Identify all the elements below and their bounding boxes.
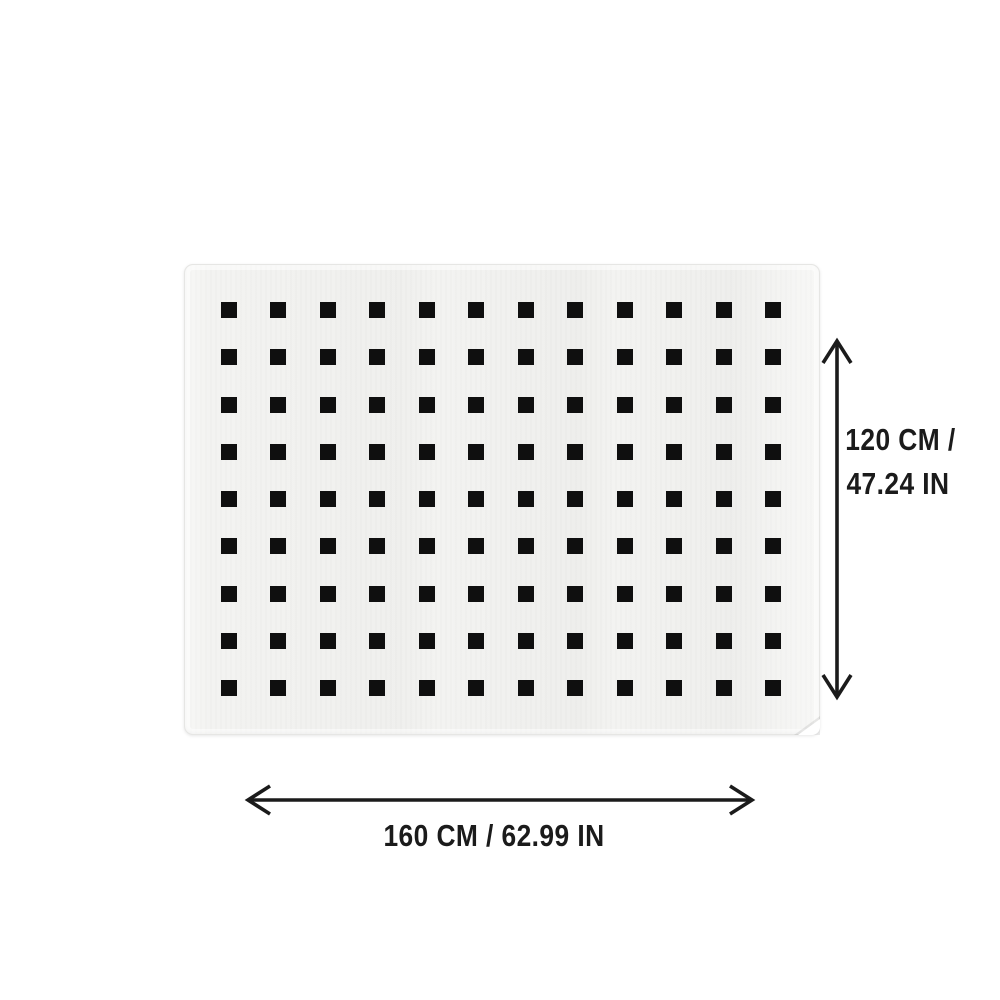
pattern-square: [617, 349, 633, 365]
pattern-square: [419, 680, 435, 696]
pattern-square: [567, 538, 583, 554]
pattern-square: [666, 491, 682, 507]
pattern-square: [221, 538, 237, 554]
pattern-square: [468, 444, 484, 460]
pattern-square: [419, 349, 435, 365]
pattern-square: [320, 586, 336, 602]
pattern-square: [270, 586, 286, 602]
pattern-square: [270, 633, 286, 649]
pattern-square: [666, 633, 682, 649]
pattern-square: [468, 538, 484, 554]
pattern-square: [716, 349, 732, 365]
pattern-square: [617, 538, 633, 554]
rug: [184, 264, 820, 735]
pattern-square: [765, 680, 781, 696]
pattern-square: [666, 444, 682, 460]
pattern-square: [518, 397, 534, 413]
pattern-square: [765, 302, 781, 318]
pattern-square: [765, 349, 781, 365]
pattern-square: [666, 586, 682, 602]
pattern-square: [320, 633, 336, 649]
pattern-square: [617, 444, 633, 460]
height-label-line-2: 47.24 IN: [845, 462, 950, 506]
pattern-square: [221, 680, 237, 696]
pattern-square: [468, 491, 484, 507]
pattern-square: [320, 444, 336, 460]
pattern-square: [270, 491, 286, 507]
pattern-square: [666, 349, 682, 365]
pattern-square: [369, 397, 385, 413]
pattern-square: [320, 349, 336, 365]
pattern-square: [567, 680, 583, 696]
pattern-square: [567, 349, 583, 365]
pattern-square: [617, 491, 633, 507]
pattern-square: [419, 491, 435, 507]
pattern-square: [617, 586, 633, 602]
pattern-square: [468, 349, 484, 365]
pattern-square: [468, 397, 484, 413]
pattern-square: [320, 538, 336, 554]
pattern-square: [666, 680, 682, 696]
pattern-square: [369, 302, 385, 318]
pattern-square: [716, 633, 732, 649]
pattern-square: [716, 397, 732, 413]
pattern-square: [567, 633, 583, 649]
pattern-square: [518, 680, 534, 696]
pattern-square: [617, 397, 633, 413]
pattern-square: [765, 633, 781, 649]
pattern-square: [617, 302, 633, 318]
width-dimension-label: 160 CM / 62.99 IN: [294, 814, 694, 858]
pattern-square: [765, 491, 781, 507]
height-dimension-label: 120 CM / 47.24 IN: [836, 418, 960, 506]
height-label-line-1: 120 CM /: [845, 418, 950, 462]
pattern-square: [270, 538, 286, 554]
pattern-square: [666, 302, 682, 318]
pattern-square: [765, 538, 781, 554]
pattern-square: [468, 586, 484, 602]
pattern-square: [468, 633, 484, 649]
pattern-square: [221, 586, 237, 602]
pattern-square: [419, 302, 435, 318]
pattern-square: [468, 302, 484, 318]
rug-pattern-grid: [221, 302, 781, 696]
pattern-square: [369, 444, 385, 460]
pattern-square: [369, 633, 385, 649]
pattern-square: [716, 586, 732, 602]
pattern-square: [221, 444, 237, 460]
pattern-square: [320, 397, 336, 413]
height-dimension-arrow-icon: [815, 331, 859, 705]
pattern-square: [617, 680, 633, 696]
pattern-square: [765, 586, 781, 602]
product-dimension-image: 120 CM / 47.24 IN 160 CM / 62.99 IN: [0, 0, 1000, 1000]
pattern-square: [468, 680, 484, 696]
pattern-square: [419, 538, 435, 554]
pattern-square: [716, 302, 732, 318]
pattern-square: [567, 444, 583, 460]
pattern-square: [716, 491, 732, 507]
pattern-square: [716, 538, 732, 554]
pattern-square: [270, 680, 286, 696]
pattern-square: [221, 397, 237, 413]
pattern-square: [221, 633, 237, 649]
pattern-square: [666, 397, 682, 413]
pattern-square: [518, 444, 534, 460]
pattern-square: [221, 491, 237, 507]
pattern-square: [567, 586, 583, 602]
pattern-square: [419, 444, 435, 460]
pattern-square: [765, 397, 781, 413]
width-label-text: 160 CM / 62.99 IN: [324, 814, 664, 858]
pattern-square: [221, 302, 237, 318]
pattern-square: [320, 491, 336, 507]
pattern-square: [270, 397, 286, 413]
pattern-square: [419, 633, 435, 649]
pattern-square: [567, 397, 583, 413]
pattern-square: [270, 302, 286, 318]
pattern-square: [567, 302, 583, 318]
pattern-square: [369, 538, 385, 554]
pattern-square: [567, 491, 583, 507]
pattern-square: [518, 491, 534, 507]
pattern-square: [518, 349, 534, 365]
pattern-square: [369, 586, 385, 602]
pattern-square: [270, 444, 286, 460]
pattern-square: [518, 633, 534, 649]
pattern-square: [419, 586, 435, 602]
pattern-square: [369, 491, 385, 507]
pattern-square: [320, 302, 336, 318]
pattern-square: [765, 444, 781, 460]
pattern-square: [617, 633, 633, 649]
pattern-square: [419, 397, 435, 413]
corner-fold: [798, 719, 820, 735]
pattern-square: [221, 349, 237, 365]
pattern-square: [518, 586, 534, 602]
pattern-square: [518, 538, 534, 554]
pattern-square: [320, 680, 336, 696]
pattern-square: [369, 349, 385, 365]
pattern-square: [716, 444, 732, 460]
pattern-square: [369, 680, 385, 696]
pattern-square: [270, 349, 286, 365]
pattern-square: [716, 680, 732, 696]
pattern-square: [666, 538, 682, 554]
pattern-square: [518, 302, 534, 318]
